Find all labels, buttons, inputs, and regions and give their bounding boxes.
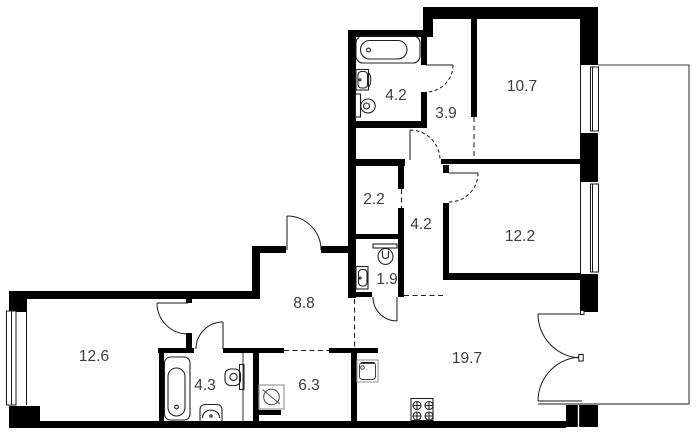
svg-text:2.2: 2.2 — [363, 191, 385, 208]
svg-text:4.3: 4.3 — [194, 377, 216, 394]
svg-text:19.7: 19.7 — [452, 350, 482, 367]
svg-text:3.9: 3.9 — [435, 105, 457, 122]
svg-text:12.6: 12.6 — [79, 348, 109, 365]
svg-text:12.2: 12.2 — [505, 228, 535, 245]
svg-text:6.3: 6.3 — [298, 377, 320, 394]
svg-text:10.7: 10.7 — [507, 78, 537, 95]
svg-text:4.2: 4.2 — [410, 216, 432, 233]
svg-text:8.8: 8.8 — [293, 295, 315, 312]
svg-text:1.9: 1.9 — [376, 271, 398, 288]
svg-text:4.2: 4.2 — [385, 87, 407, 104]
